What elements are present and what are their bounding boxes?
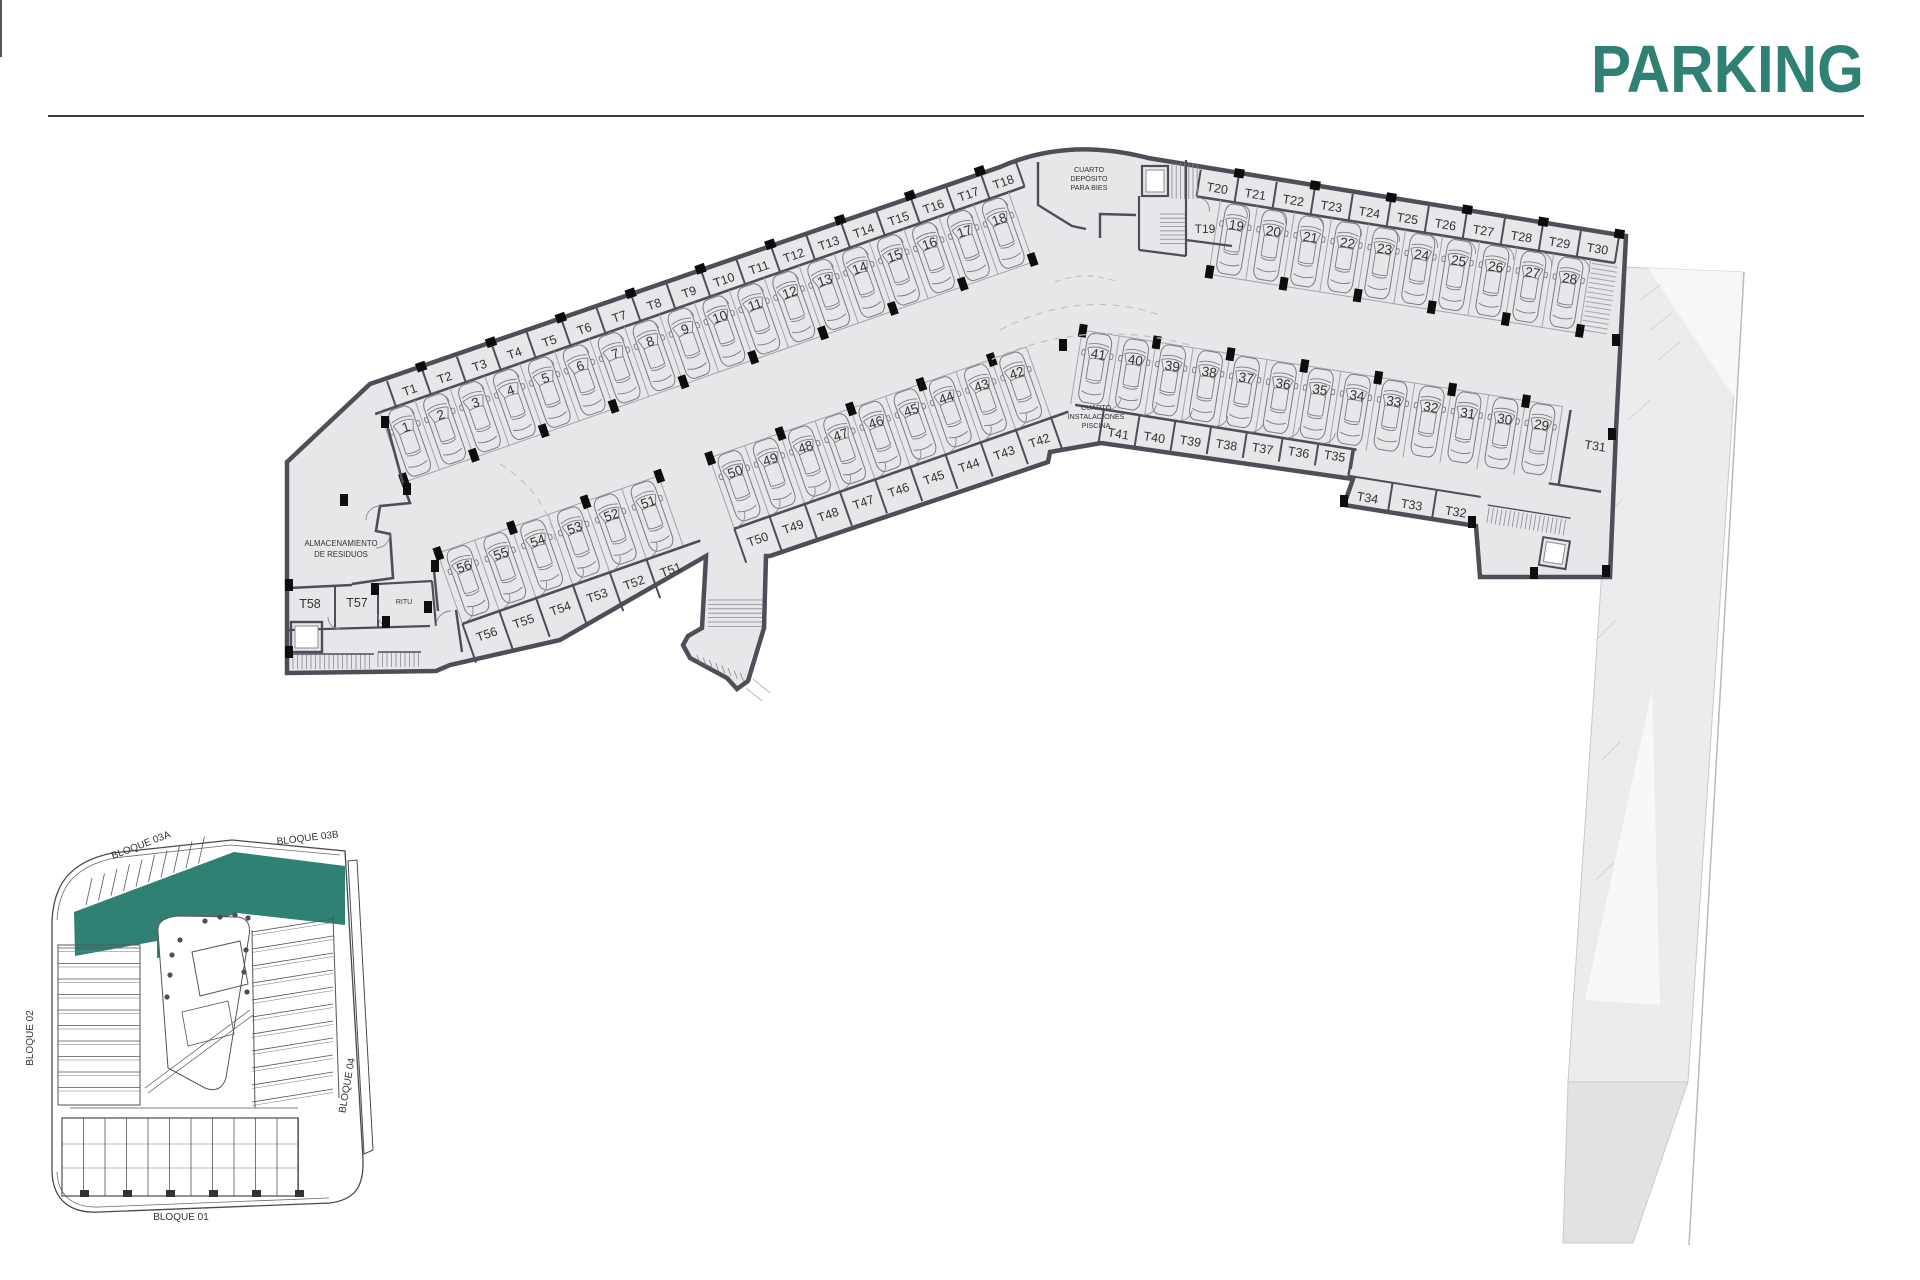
svg-text:28: 28 [1561,270,1578,287]
svg-text:41: 41 [1090,346,1107,363]
svg-text:T58: T58 [299,597,321,611]
svg-text:DEPÓSITO: DEPÓSITO [1070,174,1107,183]
svg-text:PARKING: PARKING [1591,32,1864,107]
svg-text:DE RESIDUOS: DE RESIDUOS [314,550,368,559]
svg-text:ALMACENAMIENTO: ALMACENAMIENTO [304,539,377,548]
svg-text:19: 19 [1228,217,1245,234]
svg-text:CUARTO: CUARTO [1081,403,1111,412]
svg-text:29: 29 [1533,416,1550,433]
svg-text:21: 21 [1302,229,1319,246]
svg-text:20: 20 [1265,223,1282,240]
svg-text:36: 36 [1274,375,1291,392]
svg-text:33: 33 [1385,393,1402,410]
svg-text:30: 30 [1496,411,1513,428]
svg-text:37: 37 [1238,369,1255,386]
svg-text:31: 31 [1459,405,1476,422]
svg-text:BLOQUE 01: BLOQUE 01 [153,1212,209,1223]
svg-text:CUARTO: CUARTO [1074,165,1104,174]
svg-text:40: 40 [1127,352,1144,369]
svg-text:38: 38 [1201,363,1218,380]
svg-text:39: 39 [1164,358,1181,375]
svg-text:RITU: RITU [396,599,412,606]
svg-text:BLOQUE 03B: BLOQUE 03B [276,829,339,848]
svg-text:35: 35 [1311,381,1328,398]
svg-text:25: 25 [1450,252,1467,269]
svg-text:22: 22 [1339,235,1356,252]
svg-text:27: 27 [1524,264,1541,281]
svg-text:BLOQUE 02: BLOQUE 02 [25,1010,36,1066]
svg-text:26: 26 [1487,258,1504,275]
svg-text:24: 24 [1413,246,1431,263]
svg-text:PARA BIES: PARA BIES [1070,183,1107,192]
svg-text:23: 23 [1376,241,1393,258]
svg-text:INSTALACIONES: INSTALACIONES [1068,412,1125,421]
svg-text:T57: T57 [346,596,368,610]
svg-text:T19: T19 [1195,222,1216,236]
svg-text:PISCINA: PISCINA [1082,421,1111,430]
svg-text:34: 34 [1348,387,1366,404]
svg-text:32: 32 [1422,399,1439,416]
